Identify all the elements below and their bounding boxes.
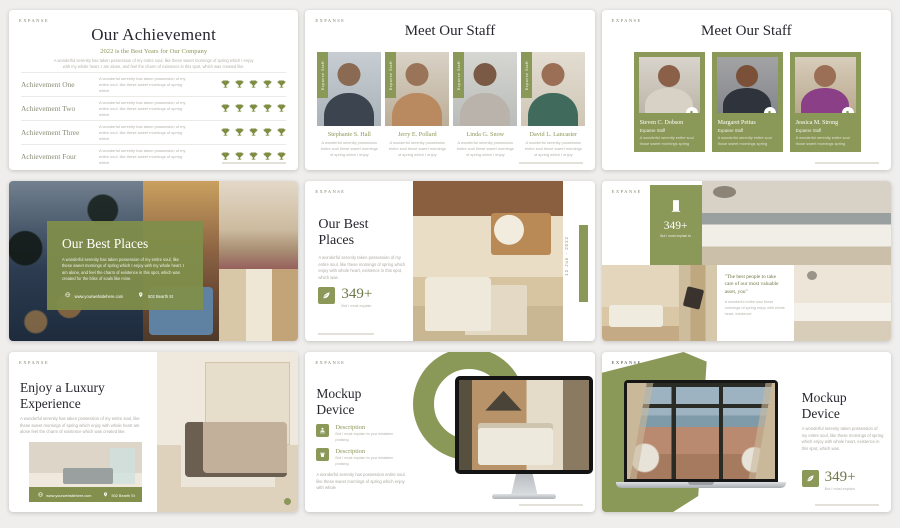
slide-meet-our-staff-3[interactable]: EXPANSE Meet Our Staff Steven C. Dobson … bbox=[602, 10, 891, 170]
person-badge-icon bbox=[764, 107, 776, 113]
achievement-row: Achievement Two A wonderful serenity has… bbox=[21, 96, 286, 120]
staff-name: Jerry E. Pollard bbox=[385, 131, 449, 138]
watermark bbox=[222, 162, 286, 164]
laptop-base bbox=[616, 482, 786, 488]
leaf-icon bbox=[802, 470, 819, 487]
trophy-icon bbox=[235, 104, 244, 113]
slide-our-achievement[interactable]: EXPANSE Our Achievement 2022 is the Best… bbox=[9, 10, 298, 170]
monitor-base bbox=[492, 494, 556, 499]
slide-body: A wonderful serenity taken possession of… bbox=[318, 255, 406, 282]
staff-name: David L. Lancaster bbox=[521, 131, 585, 138]
staff-photo: Expanse Staff bbox=[385, 52, 449, 126]
achievement-label: Achievement Two bbox=[21, 104, 99, 113]
brand-logo: EXPANSE bbox=[19, 18, 49, 23]
feature-text: But I must explain to you mistaken prais… bbox=[335, 456, 397, 467]
brand-logo: EXPANSE bbox=[19, 360, 49, 365]
staff-card: Expanse Staff David L. Lancaster A wonde… bbox=[521, 52, 585, 158]
slide-title: Our Best Places bbox=[62, 236, 148, 252]
map-pin-icon bbox=[138, 292, 144, 298]
trophy-rating bbox=[221, 152, 286, 161]
slide-title: Enjoy a Luxury Experience bbox=[20, 380, 140, 411]
staff-name: Linda G. Snow bbox=[453, 131, 517, 138]
trophy-icon bbox=[235, 80, 244, 89]
trophy-icon bbox=[263, 104, 272, 113]
slide-title: Mockup Device bbox=[802, 390, 880, 421]
staff-ribbon: Expanse Staff bbox=[453, 52, 464, 98]
person-badge-icon bbox=[686, 107, 698, 113]
slide-body: A wonderful serenity has taken possessio… bbox=[62, 257, 188, 282]
stat-number: 349+ bbox=[341, 287, 372, 302]
stat-caption: But I must explain bbox=[825, 487, 856, 491]
feature-heading: Description bbox=[335, 448, 397, 455]
stat-panel: 349+ But I must explain to bbox=[650, 185, 702, 265]
slide-title: Our Achievement bbox=[9, 25, 298, 45]
photo-bedroom-right bbox=[794, 265, 891, 341]
slide-intro: A wonderful serenity has taken possessio… bbox=[51, 58, 256, 70]
laptop-screen bbox=[624, 380, 778, 482]
watermark bbox=[519, 504, 583, 506]
accent-bar bbox=[579, 225, 588, 302]
staff-photo bbox=[717, 57, 778, 113]
photo-ornate-room bbox=[219, 181, 298, 269]
trophy-icon bbox=[249, 128, 258, 137]
trophy-icon bbox=[221, 152, 230, 161]
photo-door-hand bbox=[679, 265, 717, 341]
photo-bedroom-large bbox=[157, 352, 298, 512]
achievement-label: Achievement Three bbox=[21, 128, 99, 137]
address: 502 Bearth St bbox=[135, 292, 173, 299]
stat-block: 349+ But I must explain bbox=[318, 287, 372, 308]
staff-card: Jessica M. Strong Expanse Staff A wonder… bbox=[790, 52, 861, 152]
trophy-icon bbox=[263, 152, 272, 161]
quote-text: "The best people to take care of our mos… bbox=[725, 274, 786, 296]
watermark bbox=[815, 504, 879, 506]
watermark bbox=[815, 162, 879, 164]
brand-logo: EXPANSE bbox=[612, 360, 642, 365]
date-label: 12 Jun - 2022 bbox=[564, 236, 569, 276]
staff-name: Steven C. Dobson bbox=[640, 120, 701, 126]
feature-item: Description But I must explain to you mi… bbox=[316, 448, 416, 467]
stat-block: 349+ But I must explain bbox=[802, 470, 856, 491]
website: www.yourwebsitehere.com bbox=[62, 292, 123, 299]
slide-title: Mockup Device bbox=[316, 386, 386, 417]
staff-desc: A wonderful serenity possession entire s… bbox=[317, 140, 381, 158]
building-icon bbox=[670, 199, 682, 212]
quote-body: A wonderful entire soul these mornings o… bbox=[725, 300, 786, 318]
slide-title: Meet Our Staff bbox=[602, 23, 891, 40]
monitor-mockup bbox=[455, 376, 593, 499]
achievement-row: Achievement Four A wonderful serenity ha… bbox=[21, 144, 286, 168]
slide-luxury-experience[interactable]: EXPANSE Enjoy a Luxury Experience A wond… bbox=[9, 352, 298, 512]
trophy-icon bbox=[221, 128, 230, 137]
staff-name: Margaret Pettus bbox=[718, 120, 779, 126]
staff-desc: A wonderful serenity possession entire s… bbox=[453, 140, 517, 158]
brand-logo: EXPANSE bbox=[315, 18, 345, 23]
watermark bbox=[519, 162, 583, 164]
watermark bbox=[318, 333, 374, 335]
photo-bedroom-small: www.yourwebsitehere.com 502 Bearth St bbox=[29, 442, 142, 502]
slide-mockup-laptop[interactable]: EXPANSE Mockup Device A wonderful sereni… bbox=[602, 352, 891, 512]
feature-item: Description But I must explain to you mi… bbox=[316, 424, 416, 443]
globe-icon bbox=[65, 292, 71, 298]
trophy-icon bbox=[249, 80, 258, 89]
staff-card: Expanse Staff Linda G. Snow A wonderful … bbox=[453, 52, 517, 158]
feature-text: But I must explain to you mistaken prais… bbox=[335, 432, 397, 443]
achievement-row: Achievement One A wonderful serenity has… bbox=[21, 72, 286, 96]
leaf-icon bbox=[318, 287, 335, 304]
achievement-label: Achievement Four bbox=[21, 152, 99, 161]
slide-title: Meet Our Staff bbox=[305, 23, 594, 40]
staff-photo: Expanse Staff bbox=[521, 52, 585, 126]
staff-ribbon: Expanse Staff bbox=[317, 52, 328, 98]
slide-rooms-quote[interactable]: EXPANSE 349+ But I must explain to "The … bbox=[602, 181, 891, 341]
screen-photo-bedroom bbox=[459, 380, 589, 470]
slide-our-best-places-stat[interactable]: EXPANSE Our Best Places A wonderful sere… bbox=[305, 181, 594, 341]
staff-photo bbox=[639, 57, 700, 113]
trophy-rating bbox=[221, 80, 286, 89]
contact-row: www.yourwebsitehere.com 502 Bearth St bbox=[62, 292, 173, 299]
staff-name: Jessica M. Strong bbox=[796, 120, 857, 126]
trophy-icon bbox=[263, 128, 272, 137]
trophy-icon bbox=[221, 104, 230, 113]
slide-our-best-places-collage[interactable]: Our Best Places A wonderful serenity has… bbox=[9, 181, 298, 341]
trophy-icon bbox=[277, 128, 286, 137]
staff-card: Margaret Pettus Expanse Staff A wonderfu… bbox=[712, 52, 783, 152]
screen-photo-seaview-room bbox=[627, 383, 775, 479]
achievement-desc: A wonderful serenity has taken possessio… bbox=[99, 124, 191, 142]
photo-room-detail bbox=[219, 269, 298, 341]
staff-desc: A wonderful serenity possession entire s… bbox=[385, 140, 449, 158]
trophy-rating bbox=[221, 128, 286, 137]
slide-body: A wonderful serenity has possession enti… bbox=[316, 472, 412, 492]
staff-photo bbox=[795, 57, 856, 113]
trophy-icon bbox=[249, 152, 258, 161]
staff-card: Expanse Staff Stephanie S. Hall A wonder… bbox=[317, 52, 381, 158]
award-person-icon bbox=[316, 424, 329, 437]
staff-desc: A wonderful serenity entire soul those s… bbox=[718, 135, 778, 147]
staff-ribbon: Expanse Staff bbox=[385, 52, 396, 98]
feature-heading: Description bbox=[335, 424, 397, 431]
title-overlay: Our Best Places A wonderful serenity has… bbox=[47, 221, 203, 310]
trophy-icon bbox=[221, 80, 230, 89]
staff-role: Expanse Staff bbox=[718, 128, 743, 133]
slide-body: A wonderful serenity taken possession of… bbox=[802, 426, 884, 453]
map-pin-icon bbox=[103, 492, 108, 497]
achievement-list: Achievement One A wonderful serenity has… bbox=[21, 72, 286, 168]
trophy-icon bbox=[249, 104, 258, 113]
laptop-mockup bbox=[616, 380, 786, 488]
achievement-desc: A wonderful serenity has taken possessio… bbox=[99, 148, 191, 166]
staff-card: Steven C. Dobson Expanse Staff A wonderf… bbox=[634, 52, 705, 152]
achievement-row: Achievement Three A wonderful serenity h… bbox=[21, 120, 286, 144]
brand-logo: EXPANSE bbox=[612, 189, 642, 194]
contact-bar: www.yourwebsitehere.com 502 Bearth St bbox=[29, 487, 142, 502]
trophy-icon bbox=[277, 152, 286, 161]
trophy-icon bbox=[263, 80, 272, 89]
achievement-label: Achievement One bbox=[21, 80, 99, 89]
stat-caption: But I must explain to bbox=[650, 234, 702, 238]
photo-bedroom-left bbox=[602, 265, 679, 341]
basket-icon bbox=[316, 448, 329, 461]
slide-body: A wonderful serenity has taken possessio… bbox=[20, 416, 145, 436]
slides-board: EXPANSE Our Achievement 2022 is the Best… bbox=[0, 0, 900, 528]
photo-bedroom-top bbox=[702, 181, 891, 265]
slide-mockup-monitor[interactable]: EXPANSE Mockup Device Description But I … bbox=[305, 352, 594, 512]
stat-number: 349+ bbox=[650, 220, 702, 232]
staff-desc: A wonderful serenity possession entire s… bbox=[521, 140, 585, 158]
website: www.yourwebsitehere.com bbox=[36, 492, 91, 498]
trophy-icon bbox=[235, 128, 244, 137]
slide-meet-our-staff-4[interactable]: EXPANSE Meet Our Staff Expanse Staff Ste… bbox=[305, 10, 594, 170]
slide-title: Our Best Places bbox=[318, 217, 398, 249]
trophy-rating bbox=[221, 104, 286, 113]
staff-role: Expanse Staff bbox=[640, 128, 665, 133]
brand-logo: EXPANSE bbox=[315, 360, 345, 365]
globe-icon bbox=[38, 492, 43, 497]
staff-role: Expanse Staff bbox=[796, 128, 821, 133]
monitor-stand bbox=[511, 474, 537, 494]
achievement-desc: A wonderful serenity has taken possessio… bbox=[99, 100, 191, 118]
stat-number: 349+ bbox=[825, 470, 856, 485]
achievement-desc: A wonderful serenity has taken possessio… bbox=[99, 76, 191, 94]
staff-desc: A wonderful serenity entire soul those s… bbox=[640, 135, 700, 147]
person-badge-icon bbox=[842, 107, 854, 113]
brand-logo: EXPANSE bbox=[315, 189, 345, 194]
staff-photo: Expanse Staff bbox=[317, 52, 381, 126]
trophy-icon bbox=[277, 104, 286, 113]
staff-ribbon: Expanse Staff bbox=[521, 52, 532, 98]
stat-caption: But I must explain bbox=[341, 304, 372, 308]
trophy-icon bbox=[235, 152, 244, 161]
slide-subtitle: 2022 is the Best Years for Our Company bbox=[9, 48, 298, 55]
address: 502 Bearth St bbox=[101, 492, 134, 498]
staff-name: Stephanie S. Hall bbox=[317, 131, 381, 138]
trophy-icon bbox=[277, 80, 286, 89]
staff-photo: Expanse Staff bbox=[453, 52, 517, 126]
photo-lobby bbox=[413, 181, 563, 341]
brand-logo: EXPANSE bbox=[612, 18, 642, 23]
staff-card: Expanse Staff Jerry E. Pollard A wonderf… bbox=[385, 52, 449, 158]
staff-desc: A wonderful serenity entire soul those s… bbox=[796, 135, 856, 147]
quote-card: "The best people to take care of our mos… bbox=[717, 265, 794, 341]
monitor-screen bbox=[455, 376, 593, 474]
